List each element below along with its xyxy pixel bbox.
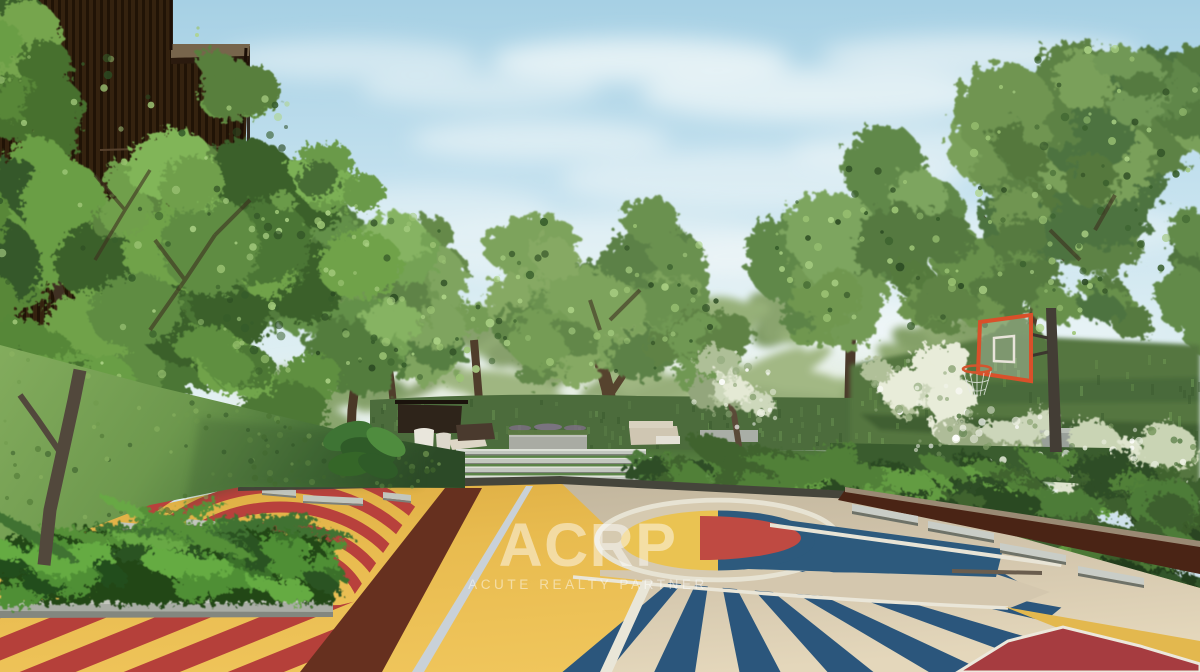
- svg-text:ACUTE REALTY PARTNER: ACUTE REALTY PARTNER: [468, 577, 708, 592]
- svg-text:ACRP: ACRP: [499, 511, 678, 579]
